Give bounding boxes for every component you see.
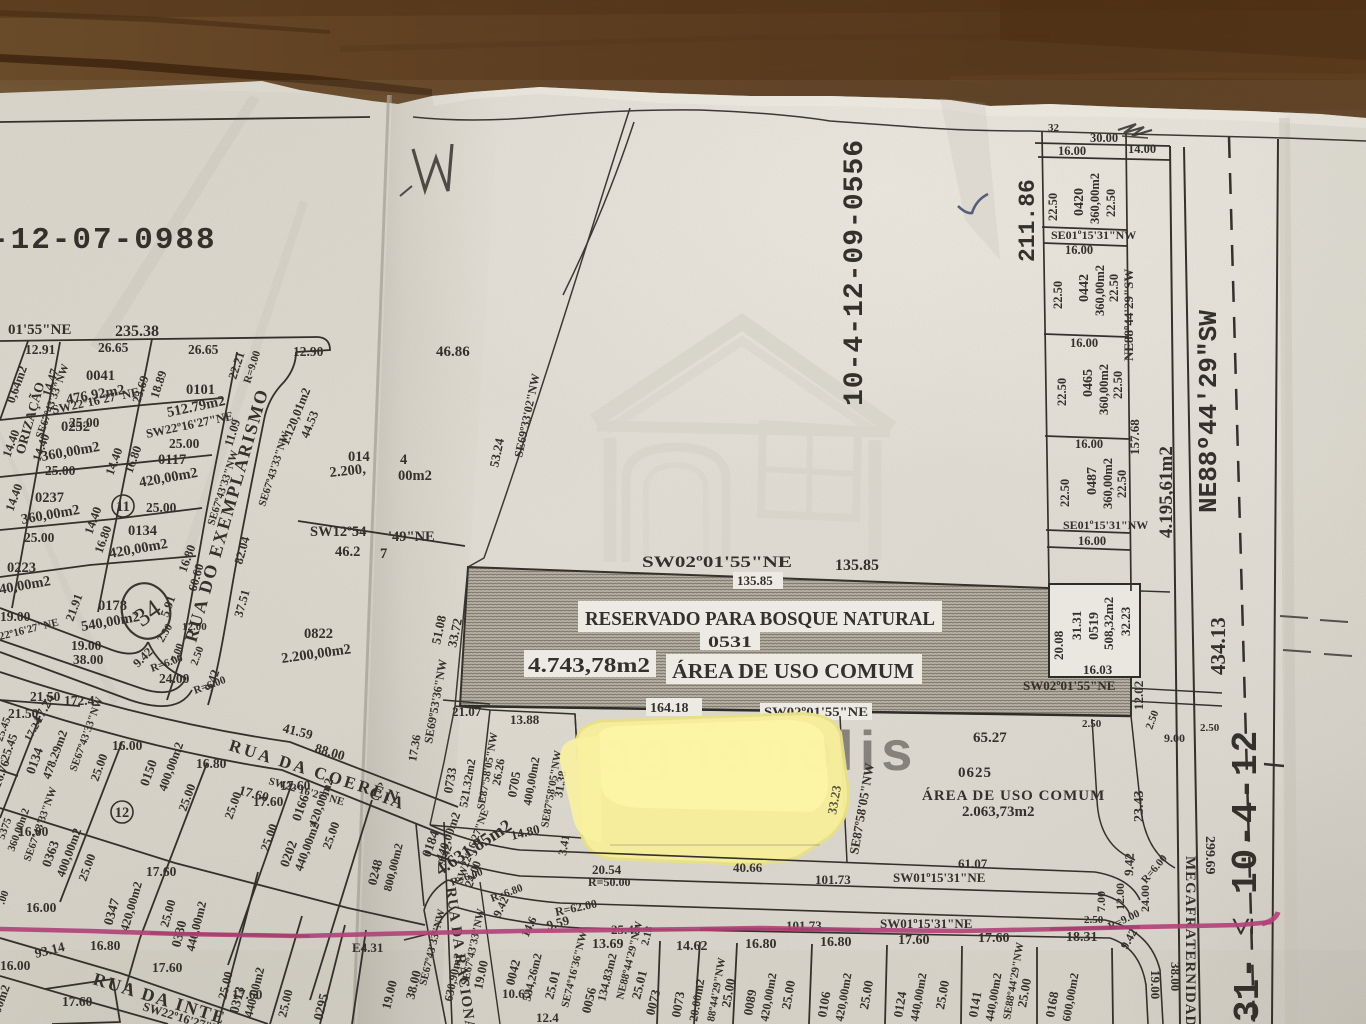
svg-text:ÁREA DE USO COMUM: ÁREA DE USO COMUM [922, 787, 1105, 804]
svg-text:13.88: 13.88 [510, 712, 540, 727]
svg-text:38.00: 38.00 [73, 652, 104, 667]
svg-text:12.4: 12.4 [536, 1010, 559, 1024]
svg-text:40.66: 40.66 [733, 860, 763, 875]
svg-text:22.50: 22.50 [1104, 189, 1118, 217]
svg-text:16.00: 16.00 [1078, 534, 1106, 548]
svg-text:22.50: 22.50 [1058, 479, 1072, 507]
svg-text:0822: 0822 [304, 626, 333, 642]
svg-text:22.50: 22.50 [1055, 378, 1069, 406]
svg-text:00m2: 00m2 [398, 468, 432, 484]
svg-text:65.27: 65.27 [973, 730, 1007, 746]
svg-text:17.60: 17.60 [62, 994, 93, 1009]
svg-text:0487: 0487 [1085, 467, 1100, 495]
svg-text:4.195,61m2: 4.195,61m2 [1156, 446, 1177, 538]
svg-text:22.50: 22.50 [1046, 193, 1060, 221]
svg-text:0519: 0519 [1087, 612, 1102, 640]
svg-text:7: 7 [380, 546, 387, 562]
svg-text:SE01º15'31"NW: SE01º15'31"NW [1051, 228, 1136, 242]
svg-text:22.50: 22.50 [1115, 470, 1129, 498]
svg-text:0252: 0252 [61, 419, 90, 435]
svg-text:R=50.00: R=50.00 [588, 875, 631, 889]
svg-text:17.60: 17.60 [232, 987, 263, 1002]
svg-text:2.50: 2.50 [1084, 914, 1104, 926]
svg-text:12: 12 [115, 805, 130, 821]
svg-text:9.00: 9.00 [1164, 731, 1185, 745]
svg-text:14.00: 14.00 [1128, 142, 1156, 156]
svg-text:7.00: 7.00 [1094, 891, 1108, 912]
svg-text:2.063,73m2: 2.063,73m2 [962, 804, 1035, 820]
svg-text:20.08: 20.08 [1051, 630, 1066, 660]
svg-text:SW01º15'31"NE: SW01º15'31"NE [893, 870, 985, 885]
svg-text:16.03: 16.03 [1083, 662, 1113, 677]
svg-text:0134: 0134 [128, 523, 157, 539]
svg-text:26.65: 26.65 [98, 340, 129, 355]
svg-text:24.00: 24.00 [1138, 885, 1152, 912]
svg-text:17.60: 17.60 [152, 960, 183, 975]
svg-text:38.00: 38.00 [1168, 962, 1183, 991]
svg-text:E4.31: E4.31 [352, 940, 383, 955]
svg-text:211.86: 211.86 [1015, 179, 1041, 262]
svg-text:25.00: 25.00 [24, 530, 55, 545]
svg-text:17.60: 17.60 [898, 933, 930, 948]
svg-text:NE88º44'29"SW: NE88º44'29"SW [1121, 269, 1136, 361]
svg-text:135.85: 135.85 [835, 557, 879, 574]
svg-text:25.00: 25.00 [45, 463, 76, 478]
svg-text:17.60: 17.60 [146, 864, 177, 879]
svg-text:22.50: 22.50 [1051, 281, 1065, 309]
svg-text:-12-07-0988: -12-07-0988 [0, 223, 217, 258]
svg-text:18.31: 18.31 [1066, 930, 1098, 945]
svg-text:0237: 0237 [35, 490, 64, 506]
svg-text:MEGAFRATERNIDADE: MEGAFRATERNIDADE [1182, 856, 1198, 1024]
svg-text:RESERVADO PARA BOSQUE NATURAL: RESERVADO PARA BOSQUE NATURAL [585, 608, 935, 630]
svg-text:10-4-12: 10-4-12 [1226, 729, 1267, 894]
svg-text:21.07: 21.07 [452, 704, 482, 719]
svg-text:SW02º01'55"NE: SW02º01'55"NE [642, 554, 792, 571]
svg-text:SE01º15'31"NW: SE01º15'31"NW [1063, 518, 1148, 532]
svg-text:31.31: 31.31 [1069, 611, 1084, 640]
svg-text:'49"NE: '49"NE [388, 529, 435, 545]
svg-text:12.00: 12.00 [1113, 883, 1127, 910]
svg-text:12.90: 12.90 [293, 344, 324, 359]
svg-text:32: 32 [1048, 122, 1060, 134]
svg-text:16.80: 16.80 [820, 935, 852, 950]
svg-text:101.73: 101.73 [815, 872, 851, 887]
svg-text:16.80: 16.80 [90, 938, 121, 953]
svg-text:360,00m2: 360,00m2 [1088, 173, 1102, 224]
svg-text:12.02: 12.02 [1131, 681, 1146, 710]
svg-text:14.62: 14.62 [676, 939, 708, 954]
svg-text:46.86: 46.86 [436, 344, 470, 360]
svg-text:46.2: 46.2 [335, 544, 360, 560]
svg-text:16.00: 16.00 [1075, 437, 1103, 451]
svg-text:16.00: 16.00 [112, 738, 143, 753]
svg-text:19.00: 19.00 [1148, 970, 1163, 999]
svg-text:2.50: 2.50 [1082, 718, 1102, 730]
svg-text:9.42: 9.42 [1121, 853, 1137, 876]
svg-text:0625: 0625 [958, 765, 992, 781]
svg-text:22.50: 22.50 [1107, 274, 1121, 302]
svg-text:360,00m2: 360,00m2 [1101, 458, 1115, 509]
svg-text:0041: 0041 [86, 368, 115, 384]
svg-text:235.38: 235.38 [115, 323, 159, 340]
svg-text:164.18: 164.18 [650, 701, 689, 716]
svg-text:25.00: 25.00 [146, 500, 177, 515]
svg-text:61.07: 61.07 [958, 856, 988, 871]
svg-text:SW02º01'55"NE: SW02º01'55"NE [1023, 678, 1115, 693]
svg-text:16.00: 16.00 [0, 958, 31, 973]
svg-text:22.50: 22.50 [1111, 371, 1125, 399]
svg-text:508,32m2: 508,32m2 [1101, 597, 1116, 650]
svg-text:135.85: 135.85 [737, 573, 773, 588]
svg-text:16.00: 16.00 [1065, 243, 1093, 257]
svg-text:30.00: 30.00 [1090, 131, 1118, 145]
svg-text:0223: 0223 [7, 560, 36, 576]
svg-text:13.69: 13.69 [592, 937, 624, 952]
svg-text:157.68: 157.68 [1127, 419, 1142, 455]
svg-text:16.00: 16.00 [1070, 336, 1098, 350]
svg-text:0465: 0465 [1081, 369, 1096, 397]
svg-text:0420: 0420 [1072, 188, 1087, 216]
svg-text:4: 4 [400, 452, 407, 468]
svg-text:16.80: 16.80 [745, 937, 777, 952]
svg-text:01'55"NE: 01'55"NE [8, 322, 71, 338]
svg-text:32.23: 32.23 [1118, 606, 1133, 636]
svg-text:0442: 0442 [1077, 274, 1092, 302]
svg-text:10-4-12-09-0556: 10-4-12-09-0556 [840, 139, 871, 406]
svg-text:31-: 31- [1228, 957, 1269, 1022]
svg-text:26.65: 26.65 [188, 342, 219, 357]
svg-text:NE88º44'29"SW: NE88º44'29"SW [1194, 310, 1224, 513]
svg-text:360,00m2: 360,00m2 [1097, 364, 1111, 415]
svg-text:2.50: 2.50 [1200, 722, 1220, 734]
svg-text:16.80: 16.80 [196, 756, 227, 771]
svg-text:16.00: 16.00 [1058, 144, 1086, 158]
svg-text:11: 11 [116, 499, 130, 515]
svg-text:434.13: 434.13 [1206, 617, 1230, 675]
svg-text:19.00: 19.00 [71, 638, 102, 653]
svg-text:12.91: 12.91 [25, 342, 56, 357]
svg-text:ÁREA DE USO COMUM: ÁREA DE USO COMUM [672, 659, 914, 683]
svg-text:0117: 0117 [158, 452, 186, 468]
svg-text:19.00: 19.00 [0, 609, 31, 624]
svg-text:25.00: 25.00 [169, 436, 200, 451]
svg-text:24.00: 24.00 [159, 671, 190, 686]
svg-text:360,00m2: 360,00m2 [1093, 265, 1107, 316]
svg-text:299.69: 299.69 [1202, 836, 1217, 875]
svg-text:SW12º54: SW12º54 [310, 524, 366, 540]
svg-text:16.00: 16.00 [26, 900, 57, 915]
svg-text:4.743,78m2: 4.743,78m2 [528, 653, 650, 677]
svg-text:0531: 0531 [708, 634, 752, 651]
svg-text:17.60: 17.60 [978, 931, 1010, 946]
svg-text:23.43: 23.43 [1132, 791, 1147, 823]
